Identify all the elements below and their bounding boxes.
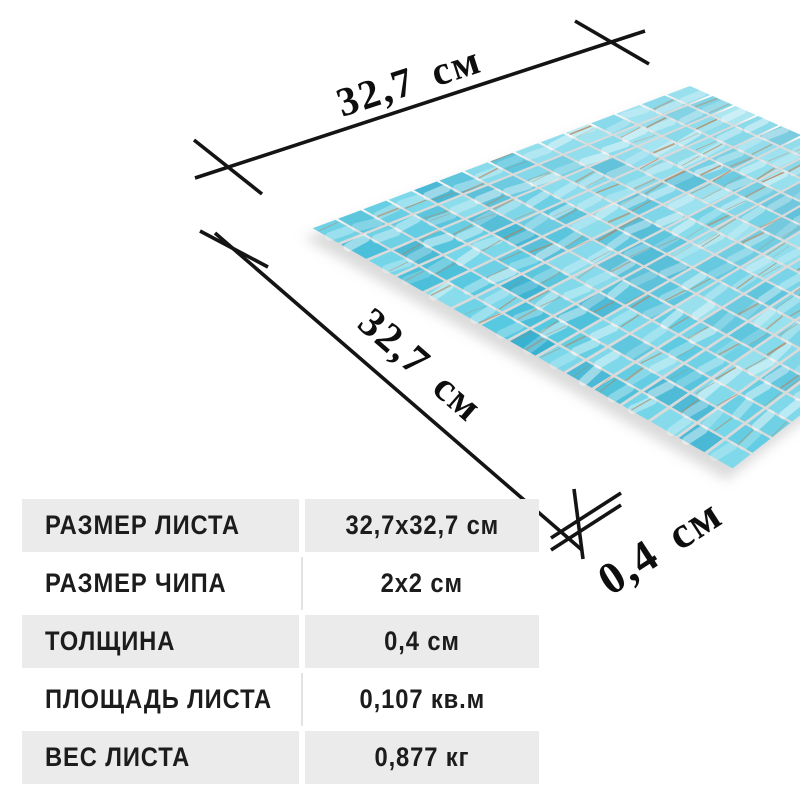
thickness-edge-line-1 [551, 493, 621, 538]
spec-label: РАЗМЕР ЛИСТА [45, 510, 240, 541]
width-dimension-label: 32,7 см [331, 36, 487, 126]
spec-label: ВЕС ЛИСТА [45, 742, 190, 773]
spec-value: 0,107 кв.м [359, 684, 485, 715]
spec-value: 32,7x32,7 см [345, 510, 499, 541]
height-dimension-tick-top [200, 231, 268, 267]
table-row: ТОЛЩИНА 0,4 см [22, 615, 539, 668]
table-row: РАЗМЕР ЧИПА 2x2 см [22, 557, 539, 610]
thickness-dimension-label: 0,4 см [589, 488, 731, 605]
spec-label: РАЗМЕР ЧИПА [45, 568, 227, 599]
product-dimension-diagram: 32,7 см 32,7 см 0,4 см РАЗМЕР ЛИСТА 32,7… [0, 0, 800, 800]
spec-label: ТОЛЩИНА [45, 626, 175, 657]
table-row: ПЛОЩАДЬ ЛИСТА 0,107 кв.м [22, 673, 539, 726]
spec-label: ПЛОЩАДЬ ЛИСТА [45, 684, 272, 715]
spec-value: 2x2 см [381, 568, 463, 599]
table-row: РАЗМЕР ЛИСТА 32,7x32,7 см [22, 499, 539, 552]
spec-value: 0,4 см [384, 626, 460, 657]
spec-value: 0,877 кг [375, 742, 470, 773]
table-row: ВЕС ЛИСТА 0,877 кг [22, 731, 539, 784]
mosaic-sheet-photo [304, 86, 800, 480]
width-dimension-tick-left [194, 140, 262, 194]
thickness-edge-line-2 [551, 505, 621, 550]
width-dimension-tick-right [575, 21, 649, 64]
spec-table: РАЗМЕР ЛИСТА 32,7x32,7 см РАЗМЕР ЧИПА 2x… [22, 499, 539, 784]
